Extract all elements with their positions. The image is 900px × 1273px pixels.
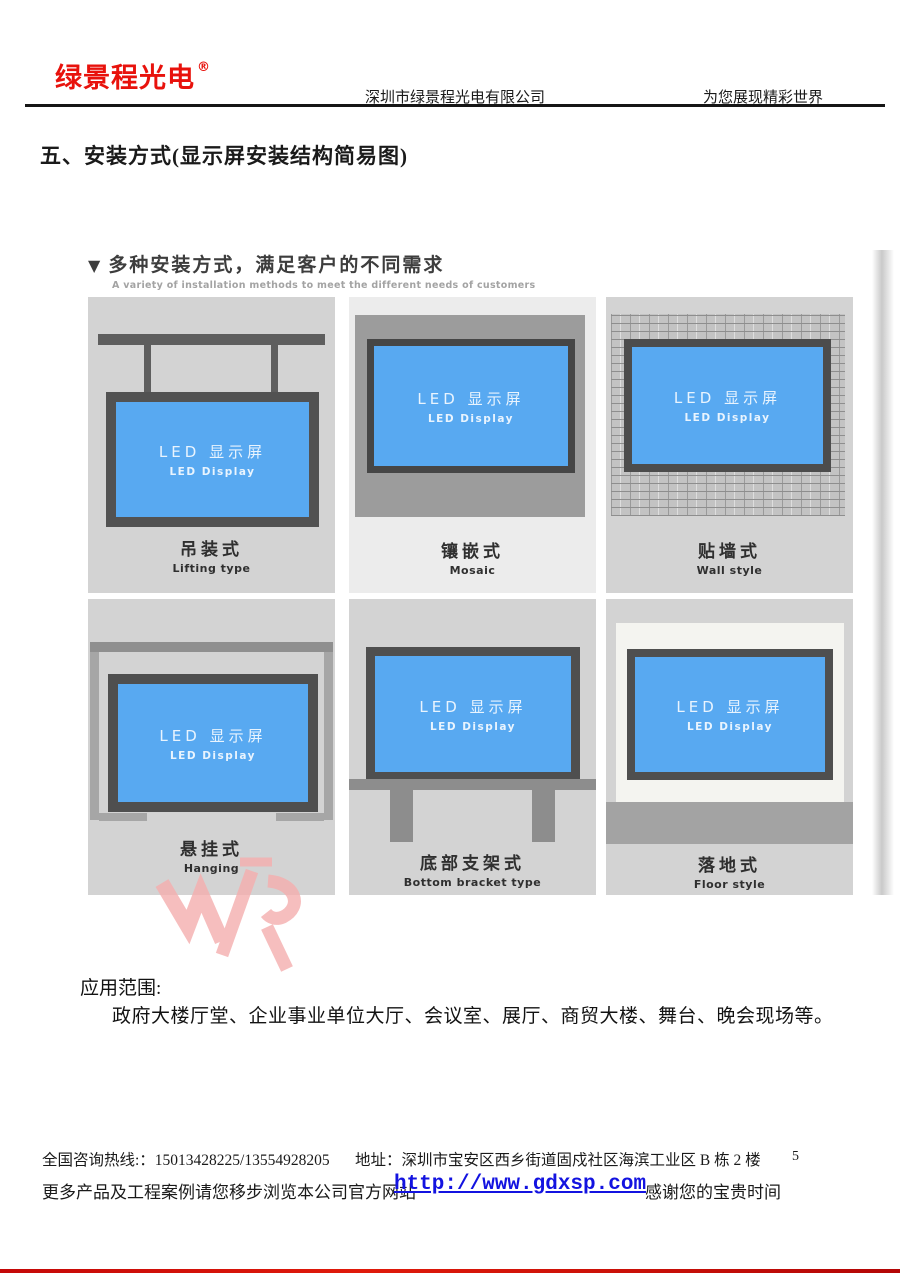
led-screen: LED 显示屏 LED Display	[374, 346, 568, 466]
hanger-rod-left	[144, 345, 151, 393]
bottom-rule	[0, 1269, 900, 1273]
website-link[interactable]: http://www.gdxsp.com	[394, 1173, 646, 1196]
screen-label-zh: LED 显示屏	[159, 725, 266, 746]
rail-foot-right	[276, 813, 324, 821]
document-page: 绿景程光电® 深圳市绿景程光电有限公司 为您展现精彩世界 五、安装方式(显示屏安…	[0, 0, 900, 1273]
ceiling-bar	[98, 334, 325, 345]
screen-label-zh: LED 显示屏	[159, 441, 266, 462]
triangle-marker-icon: ▼	[88, 256, 102, 275]
caption-zh: 落地式	[606, 851, 853, 876]
screen-label-en: LED Display	[684, 412, 770, 424]
led-display: LED 显示屏 LED Display	[108, 674, 318, 812]
screen-label-en: LED Display	[170, 750, 256, 762]
panel-caption: 贴墙式 Wall style	[606, 537, 853, 577]
footer-address: 地址：深圳市宝安区西乡街道固戍社区海滨工业区 B 栋 2 楼	[355, 1148, 761, 1170]
hanger-rod-right	[271, 345, 278, 393]
figure-subtitle: A variety of installation methods to mee…	[112, 280, 535, 291]
hanging-rail-left	[90, 652, 99, 820]
caption-en: Wall style	[606, 564, 853, 577]
logo-text: 绿景程光电	[55, 63, 195, 94]
panel-caption: 底部支架式 Bottom bracket type	[349, 849, 596, 889]
panel-caption: 吊装式 Lifting type	[88, 535, 335, 575]
led-display: LED 显示屏 LED Display	[106, 392, 319, 527]
led-screen: LED 显示屏 LED Display	[635, 657, 825, 772]
header-rule	[25, 104, 885, 107]
led-screen: LED 显示屏 LED Display	[375, 656, 571, 772]
panel-bottom-bracket: LED 显示屏 LED Display 底部支架式 Bottom bracket…	[349, 599, 596, 895]
led-display: LED 显示屏 LED Display	[627, 649, 833, 780]
registered-trademark-icon: ®	[197, 60, 211, 75]
caption-zh: 贴墙式	[606, 537, 853, 562]
watermark-logo-icon	[148, 853, 318, 993]
installation-figure: ▼多种安装方式，满足客户的不同需求 A variety of installat…	[88, 250, 853, 895]
caption-en: Floor style	[606, 878, 853, 891]
bracket-leg-left	[390, 790, 413, 842]
caption-zh: 镶嵌式	[349, 537, 596, 562]
screen-label-zh: LED 显示屏	[419, 696, 526, 717]
screen-label-zh: LED 显示屏	[417, 388, 524, 409]
caption-en: Bottom bracket type	[349, 876, 596, 889]
footer-thanks: 感谢您的宝贵时间	[645, 1178, 781, 1203]
caption-en: Mosaic	[349, 564, 596, 577]
screen-label-en: LED Display	[430, 721, 516, 733]
floor-band	[606, 802, 853, 844]
led-display: LED 显示屏 LED Display	[366, 647, 580, 781]
screen-label-en: LED Display	[687, 721, 773, 733]
figure-title: ▼多种安装方式，满足客户的不同需求	[88, 250, 444, 277]
led-screen: LED 显示屏 LED Display	[632, 347, 823, 464]
led-display: LED 显示屏 LED Display	[367, 339, 575, 473]
panel-mosaic: LED 显示屏 LED Display 镶嵌式 Mosaic	[349, 297, 596, 593]
panel-caption: 落地式 Floor style	[606, 851, 853, 891]
hanging-rail-right	[324, 652, 333, 820]
panel-hanging: LED 显示屏 LED Display 悬挂式 Hanging	[88, 599, 335, 895]
figure-title-text: 多种安装方式，满足客户的不同需求	[108, 254, 444, 276]
panel-lifting-type: LED 显示屏 LED Display 吊装式 Lifting type	[88, 297, 335, 593]
panel-floor-style: LED 显示屏 LED Display 落地式 Floor style	[606, 599, 853, 895]
screen-label-en: LED Display	[169, 466, 255, 478]
caption-zh: 吊装式	[88, 535, 335, 560]
rail-foot-left	[99, 813, 147, 821]
led-display: LED 显示屏 LED Display	[624, 339, 831, 472]
section-title: 五、安装方式(显示屏安装结构简易图)	[40, 140, 408, 170]
panel-caption: 镶嵌式 Mosaic	[349, 537, 596, 577]
page-number: 5	[792, 1149, 799, 1165]
company-logo: 绿景程光电®	[55, 56, 209, 95]
caption-zh: 底部支架式	[349, 849, 596, 874]
footer-more-text: 更多产品及工程案例请您移步浏览本公司官方网站	[42, 1178, 416, 1203]
bracket-leg-right	[532, 790, 555, 842]
screen-label-zh: LED 显示屏	[674, 387, 781, 408]
figure-side-shadow	[872, 250, 894, 895]
footer-hotline: 全国咨询热线:：15013428225/13554928205	[42, 1148, 330, 1170]
screen-label-en: LED Display	[428, 413, 514, 425]
bracket-bar	[349, 779, 596, 790]
led-screen: LED 显示屏 LED Display	[118, 684, 308, 802]
panel-wall-style: LED 显示屏 LED Display 贴墙式 Wall style	[606, 297, 853, 593]
caption-en: Lifting type	[88, 562, 335, 575]
hanging-frame-bar	[90, 642, 333, 652]
application-scope-heading: 应用范围:	[80, 973, 161, 1000]
screen-label-zh: LED 显示屏	[676, 696, 783, 717]
application-scope-body: 政府大楼厅堂、企业事业单位大厅、会议室、展厅、商贸大楼、舞台、晚会现场等。	[112, 1001, 834, 1028]
led-screen: LED 显示屏 LED Display	[116, 402, 309, 517]
